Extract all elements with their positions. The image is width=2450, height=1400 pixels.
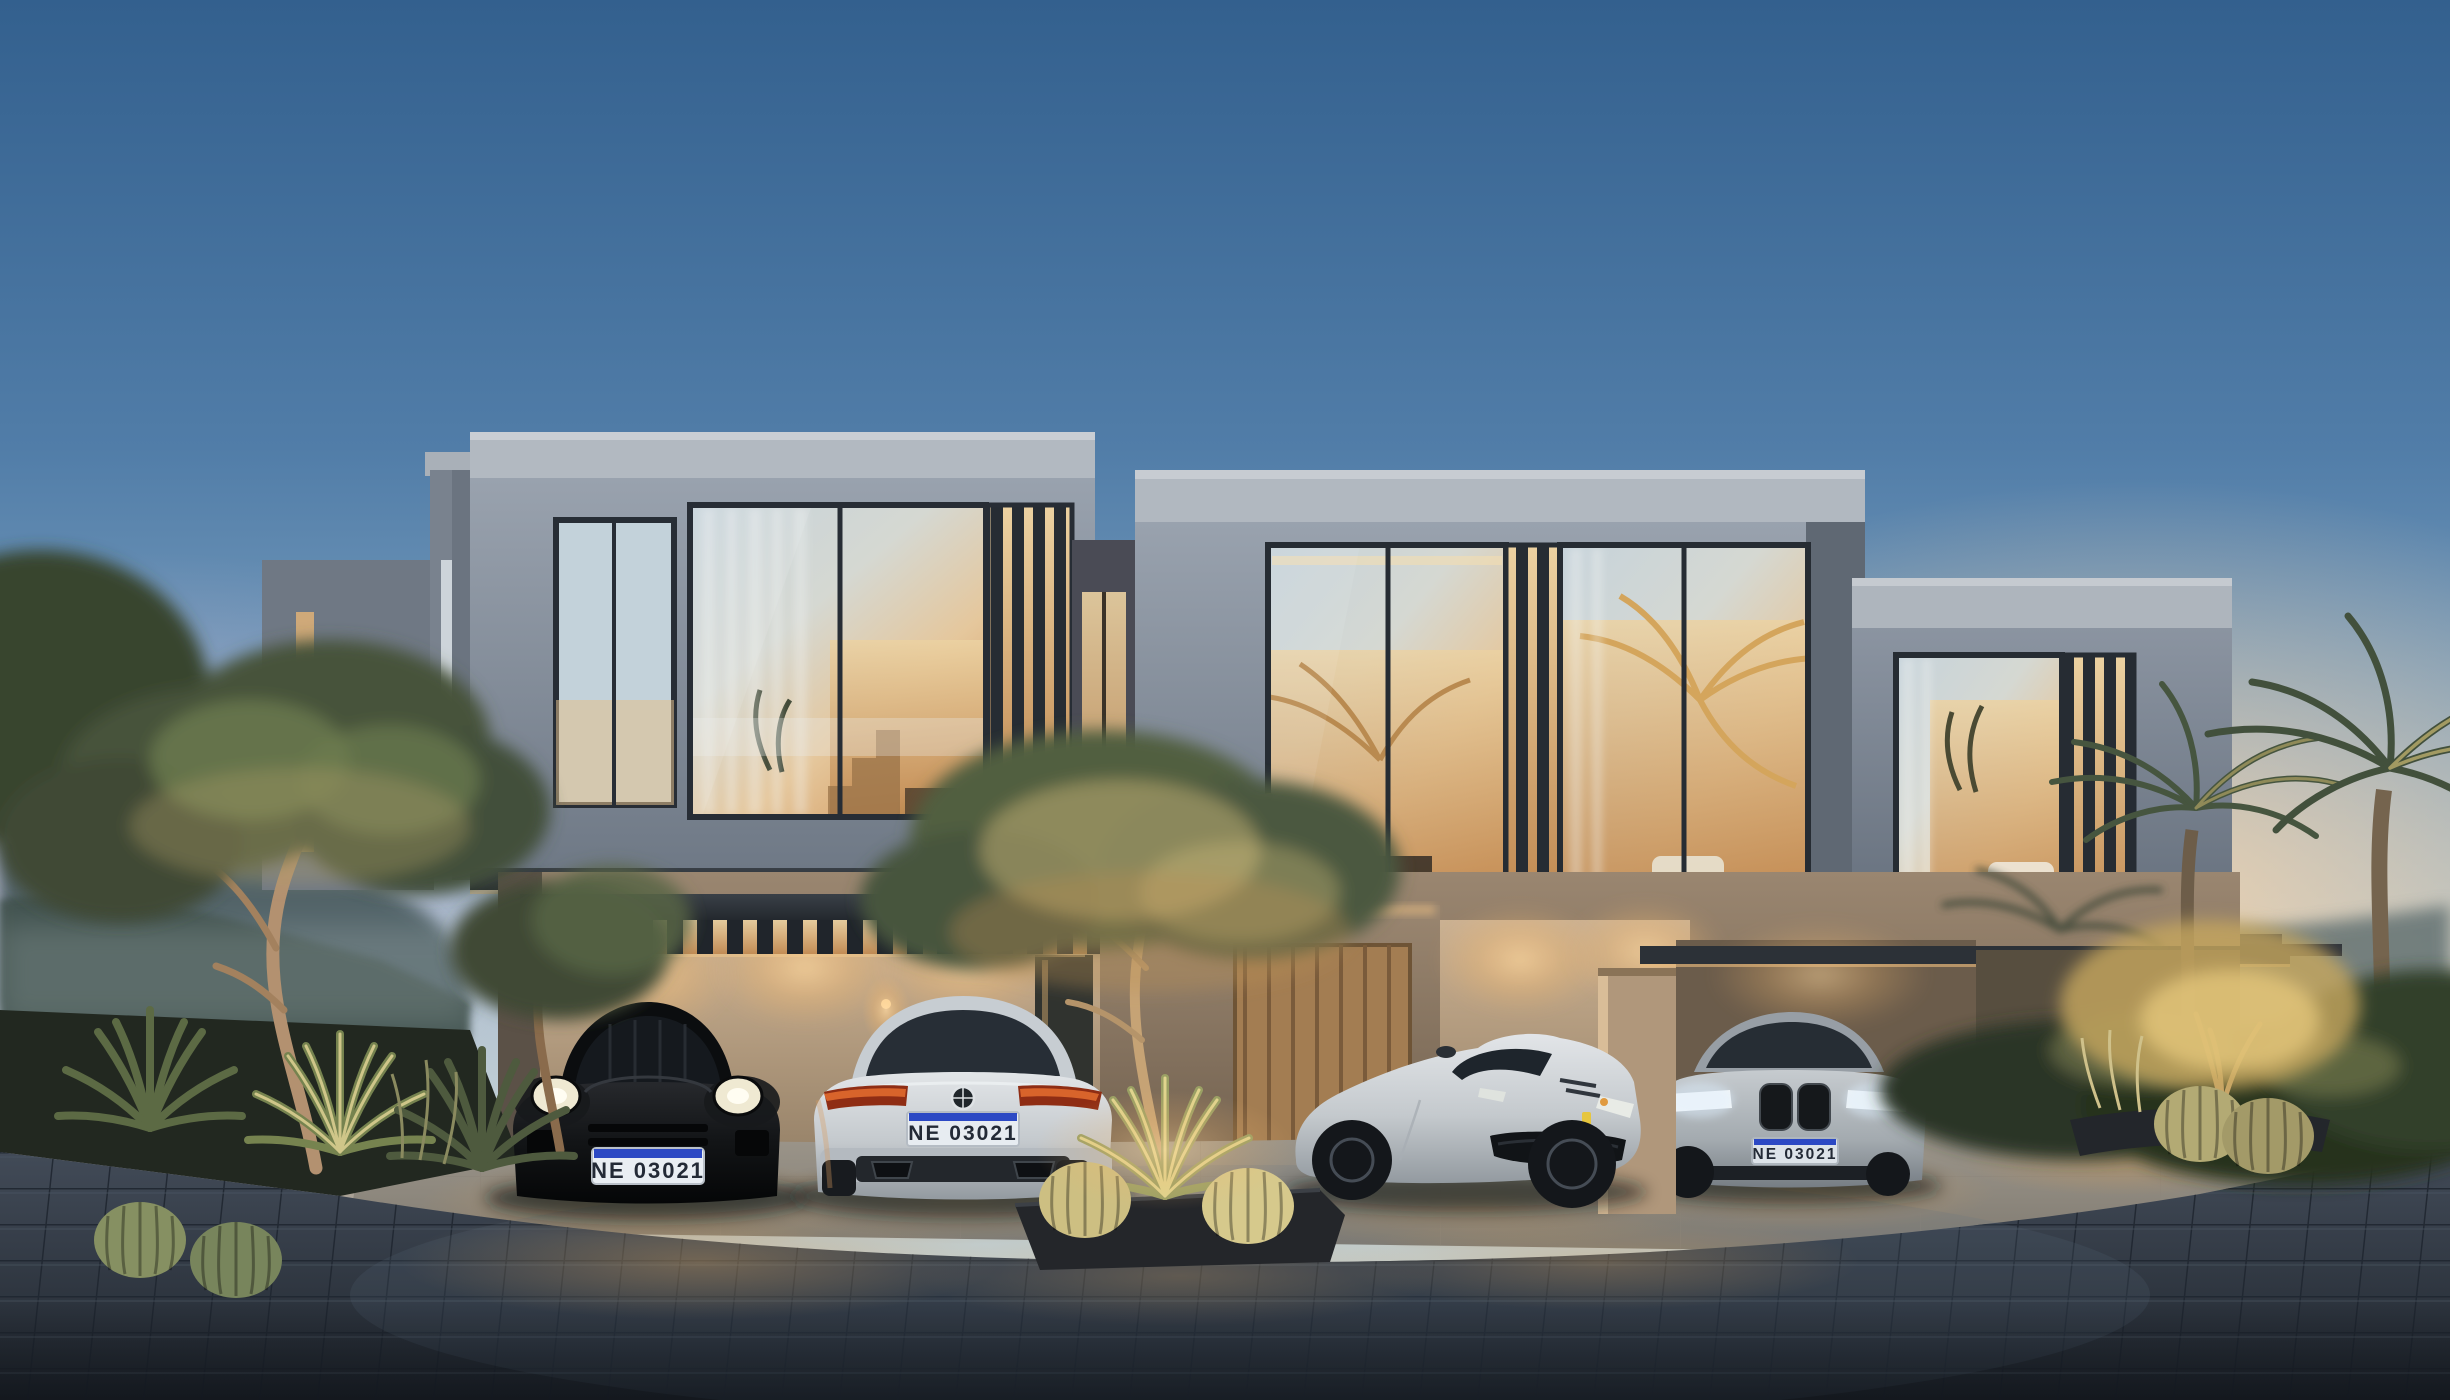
light-pool (1340, 1214, 1860, 1310)
middle-window-right (1560, 545, 1832, 905)
license-plate-text: NE 03021 (591, 1158, 705, 1183)
wheel-front-left (1312, 1120, 1392, 1200)
license-plate: NE 03021 (907, 1112, 1019, 1146)
license-plate: NE 03021 (1752, 1138, 1838, 1164)
kidney-grille-left (1760, 1084, 1792, 1130)
exhaust-left (872, 1162, 912, 1178)
plate-blue-band (1754, 1139, 1836, 1145)
headlight-glow-left (1666, 1082, 1734, 1118)
bottom-vignette (0, 1300, 2450, 1400)
wheel-front-right (1528, 1120, 1616, 1208)
headlight-right-core (727, 1088, 749, 1104)
barrel-cactus-1 (94, 1202, 186, 1278)
tree-canopy-lit (2060, 920, 2360, 1090)
grille-slat (588, 1138, 708, 1146)
render-canvas: NE 03021 NE 03021 (0, 0, 2450, 1400)
downlight-glow (1710, 920, 1930, 1030)
left-cube-fascia-highlight (470, 432, 1095, 440)
middle-louver-screen (1506, 545, 1560, 905)
license-plate-text: NE 03021 (908, 1122, 1017, 1145)
license-plate: NE 03021 (591, 1148, 705, 1184)
lower-intake (1700, 1166, 1880, 1180)
townhouse-dusk-render: NE 03021 NE 03021 (0, 0, 2450, 1400)
middle-cube-fascia-highlight (1135, 470, 1865, 479)
headlight-amber-dot (1600, 1098, 1608, 1106)
side-mirror (1436, 1046, 1456, 1058)
louver-slats (1506, 545, 1560, 905)
intake-right (735, 1130, 769, 1156)
kidney-grille-right (1798, 1084, 1830, 1130)
license-plate-text: NE 03021 (1753, 1146, 1838, 1163)
round-cactus-2 (2222, 1098, 2314, 1174)
grille-slat (588, 1124, 708, 1132)
plate-blue-band (594, 1149, 702, 1158)
left-main-window (690, 505, 986, 817)
barrel-cactus-2 (190, 1222, 282, 1298)
planter-uplight-glow (1035, 1090, 1295, 1210)
right-cube-fascia-highlight (1852, 578, 2232, 586)
plate-blue-band (909, 1113, 1017, 1121)
wheel-right (1866, 1152, 1910, 1196)
partition-wall-top (1598, 968, 1676, 976)
